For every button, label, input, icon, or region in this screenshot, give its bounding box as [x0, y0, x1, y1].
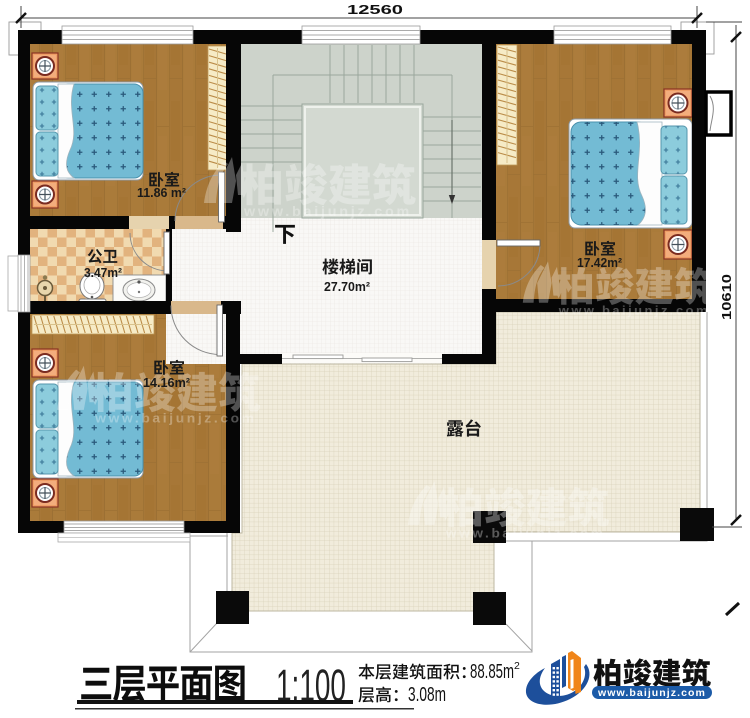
- svg-text:2: 2: [514, 660, 520, 672]
- svg-text:3.47m²: 3.47m²: [84, 265, 123, 280]
- svg-text:88.85m: 88.85m: [470, 661, 514, 683]
- svg-text:3.08m: 3.08m: [408, 684, 446, 706]
- svg-text:27.70m²: 27.70m²: [324, 279, 371, 294]
- svg-text:www.baijunjz.com: www.baijunjz.com: [597, 688, 706, 699]
- svg-text:14.16m²: 14.16m²: [143, 375, 191, 390]
- svg-text:12560: 12560: [347, 2, 403, 17]
- svg-text:10610: 10610: [719, 274, 734, 320]
- svg-text:11.86 m²: 11.86 m²: [137, 185, 187, 200]
- svg-text:17.42m²: 17.42m²: [577, 255, 623, 270]
